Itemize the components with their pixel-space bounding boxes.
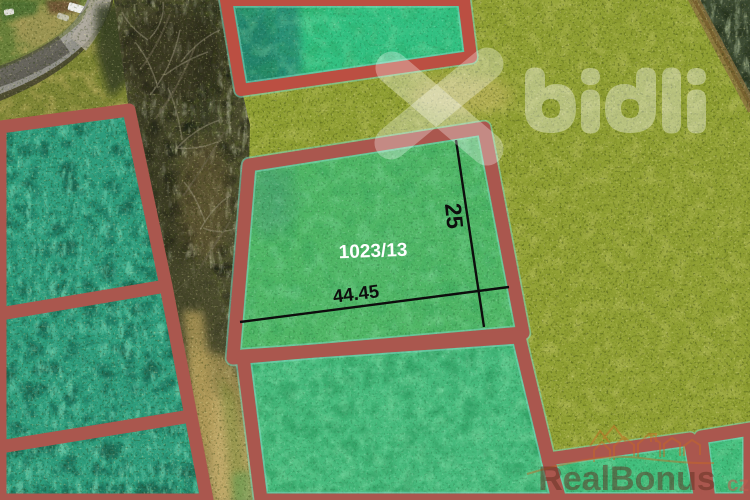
svg-text:1023/13: 1023/13 [338,240,407,263]
svg-text:RealBonus: RealBonus [538,460,716,498]
svg-text:25: 25 [440,202,469,230]
svg-text:cz: cz [727,473,749,496]
